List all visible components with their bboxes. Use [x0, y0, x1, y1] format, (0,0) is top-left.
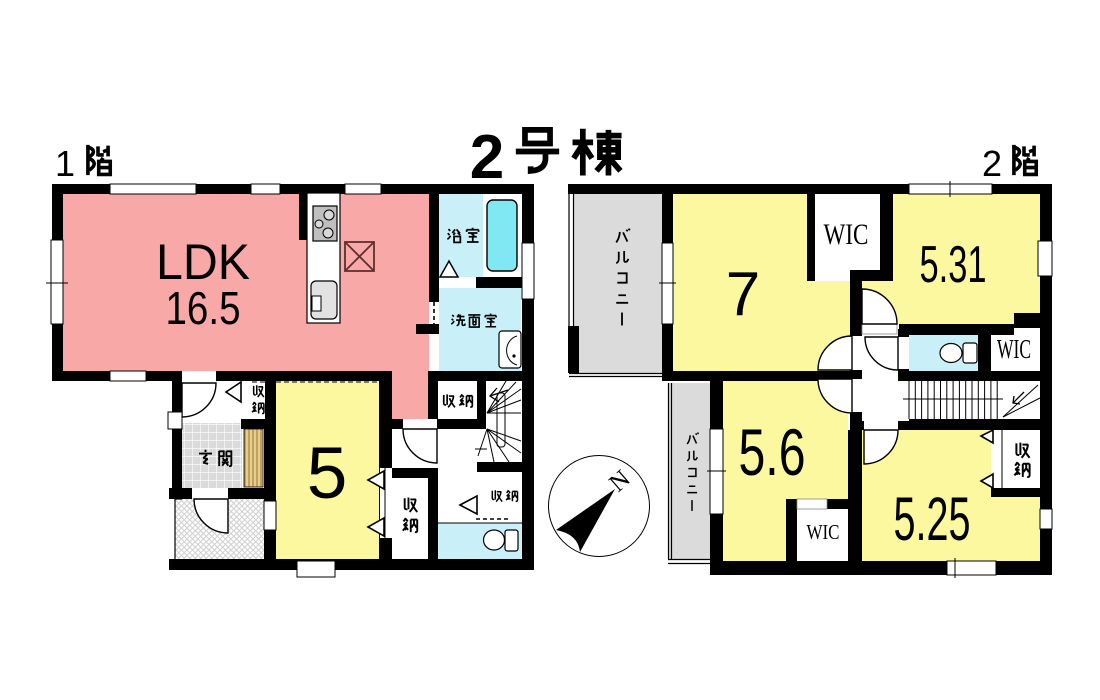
svg-text:5.25: 5.25: [894, 485, 971, 553]
svg-text:1: 1: [55, 143, 75, 184]
svg-text:WIC: WIC: [824, 218, 869, 251]
svg-text:2: 2: [982, 143, 1002, 184]
svg-text:5: 5: [307, 433, 348, 514]
svg-text:2: 2: [470, 123, 504, 192]
svg-text:16.5: 16.5: [166, 282, 241, 334]
svg-text:5.6: 5.6: [739, 415, 806, 489]
svg-text:WIC: WIC: [997, 334, 1031, 364]
svg-text:5.31: 5.31: [920, 236, 987, 294]
svg-text:7: 7: [726, 260, 760, 329]
svg-text:WIC: WIC: [807, 520, 840, 544]
